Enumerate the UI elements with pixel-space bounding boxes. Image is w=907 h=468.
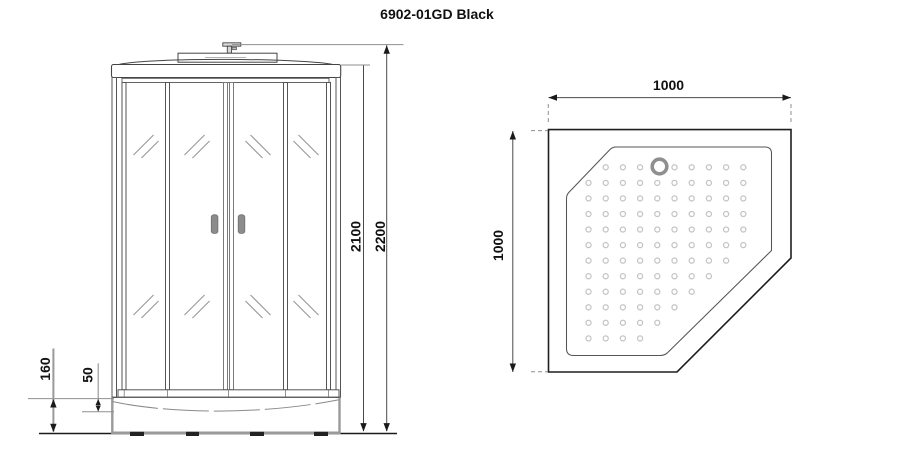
shower-tray [111, 397, 341, 436]
top-view: 1000 1000 [490, 77, 791, 372]
dim-width: 1000 [548, 77, 791, 123]
dim-label-50: 50 [80, 367, 96, 383]
frame-posts [112, 78, 341, 398]
drawing-page: 6902-01GD Black [0, 0, 907, 468]
dim-label-depth-1000: 1000 [490, 230, 506, 261]
door-handle-left [211, 215, 218, 234]
dim-cabin-height: 2100 [341, 65, 370, 432]
door-handle-right [238, 215, 245, 234]
dim-total-height: 2200 [232, 45, 404, 432]
bottom-rail [118, 390, 339, 397]
dim-label-2200: 2200 [372, 221, 388, 252]
roof-canopy [112, 53, 341, 82]
dim-label-160: 160 [37, 357, 53, 381]
dim-depth: 1000 [490, 131, 548, 372]
dim-label-width-1000: 1000 [653, 77, 684, 93]
drain-icon [652, 159, 667, 174]
dim-label-2100: 2100 [348, 221, 364, 252]
tray-outline [549, 130, 792, 372]
dim-tray-step: 50 [80, 363, 115, 411]
drawing-canvas: 2200 2100 160 [0, 0, 907, 468]
tray-front-curve [113, 400, 340, 411]
front-view: 2200 2100 160 [28, 43, 404, 436]
dim-tray-height: 160 [28, 349, 114, 433]
